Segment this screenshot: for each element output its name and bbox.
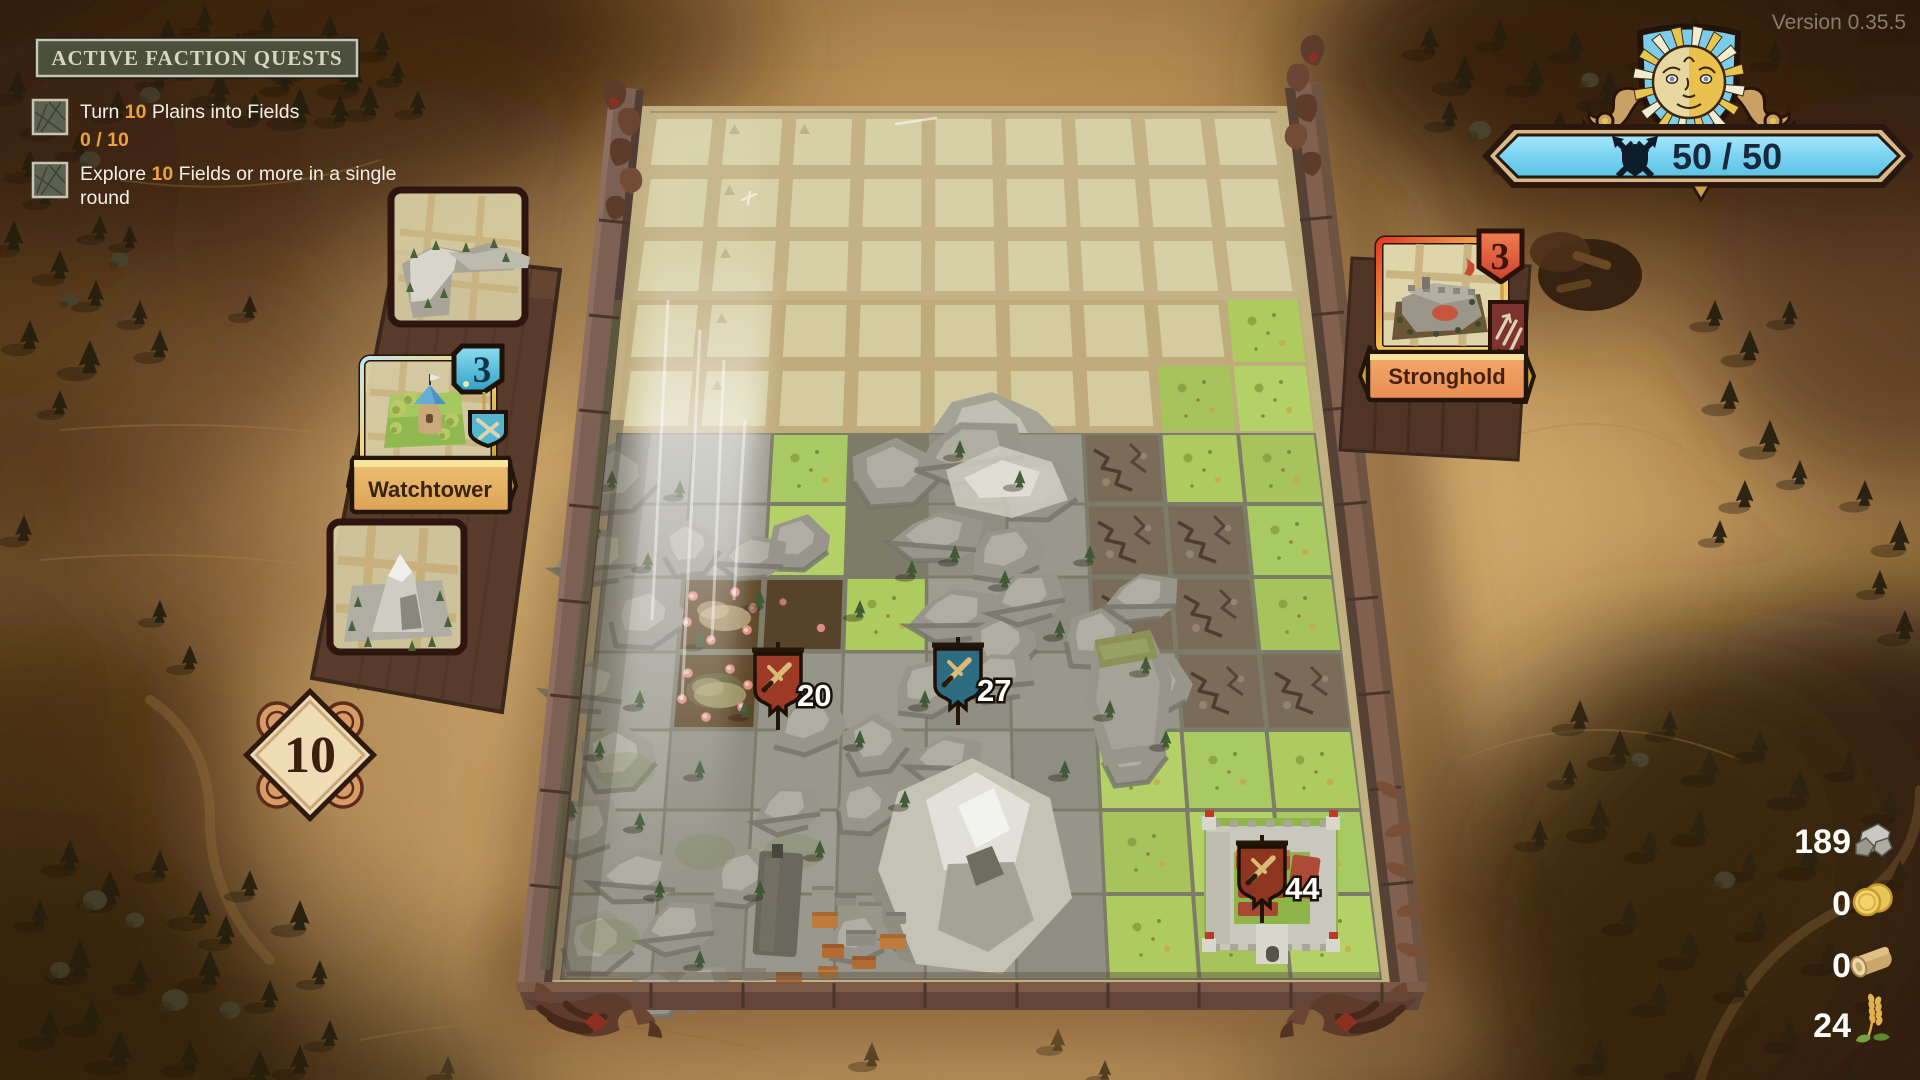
svg-text:10: 10 [284, 727, 336, 784]
svg-text:round: round [80, 187, 130, 209]
svg-text:3: 3 [1491, 236, 1510, 278]
svg-text:189: 189 [1794, 823, 1851, 861]
svg-text:0 / 10: 0 / 10 [80, 129, 129, 151]
svg-text:24: 24 [1813, 1007, 1851, 1045]
svg-text:Stronghold: Stronghold [1388, 364, 1505, 389]
svg-text:ACTIVE FACTION QUESTS: ACTIVE FACTION QUESTS [51, 46, 342, 70]
svg-text:Turn 10 Plains into Fields: Turn 10 Plains into Fields [80, 101, 300, 123]
svg-text:3: 3 [473, 350, 492, 391]
svg-text:Explore 10 Fields or more in a: Explore 10 Fields or more in a single [80, 163, 397, 185]
svg-text:Version 0.35.5: Version 0.35.5 [1772, 11, 1906, 34]
svg-text:Watchtower: Watchtower [368, 477, 492, 502]
svg-text:44: 44 [1285, 871, 1320, 906]
svg-text:0: 0 [1832, 947, 1851, 985]
svg-text:27: 27 [977, 673, 1011, 708]
svg-text:20: 20 [797, 678, 831, 713]
svg-text:0: 0 [1832, 885, 1851, 923]
svg-text:50 / 50: 50 / 50 [1672, 136, 1782, 177]
